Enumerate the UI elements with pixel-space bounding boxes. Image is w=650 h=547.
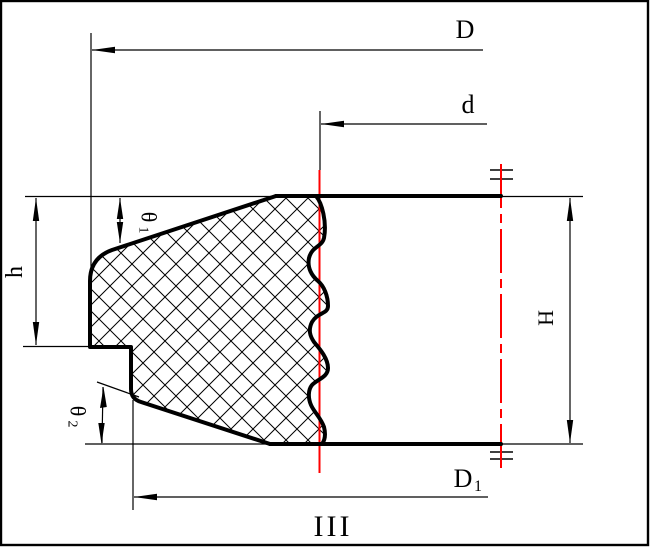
technical-drawing-page: D d D 1 h H θ 1 θ 2 III: [0, 0, 650, 547]
label-theta2-base: θ: [66, 406, 91, 417]
label-theta2: θ 2: [65, 406, 91, 428]
arrow-D1-left: [134, 494, 157, 500]
arrow-D-left: [92, 47, 115, 53]
arrow-h-up: [33, 198, 39, 221]
label-theta1: θ 1: [136, 212, 162, 234]
label-theta1-subscript: 1: [136, 227, 151, 234]
red-reference-lines: [320, 164, 502, 473]
label-D1-base: D: [454, 464, 473, 493]
arrow-theta1-down: [117, 222, 123, 243]
arrow-theta1-up: [117, 198, 123, 219]
arrow-theta2-down: [98, 423, 104, 444]
label-theta1-base: θ: [137, 212, 162, 223]
arrow-h-down: [33, 322, 39, 345]
section-view-label: III: [314, 510, 353, 543]
arrow-H-up: [567, 198, 573, 221]
arrow-H-down: [567, 420, 573, 443]
label-D: D: [456, 15, 475, 44]
arrow-theta2-up: [100, 387, 107, 408]
label-H: H: [534, 310, 559, 326]
die-cross-section-drawing: D d D 1 h H θ 1 θ 2 III: [0, 0, 650, 547]
label-D1-subscript: 1: [474, 478, 482, 495]
hatched-section-fill: [90, 196, 328, 444]
label-h: h: [2, 266, 28, 278]
label-d: d: [462, 90, 475, 119]
label-theta2-subscript: 2: [65, 421, 80, 428]
arrow-d-left: [321, 121, 344, 127]
